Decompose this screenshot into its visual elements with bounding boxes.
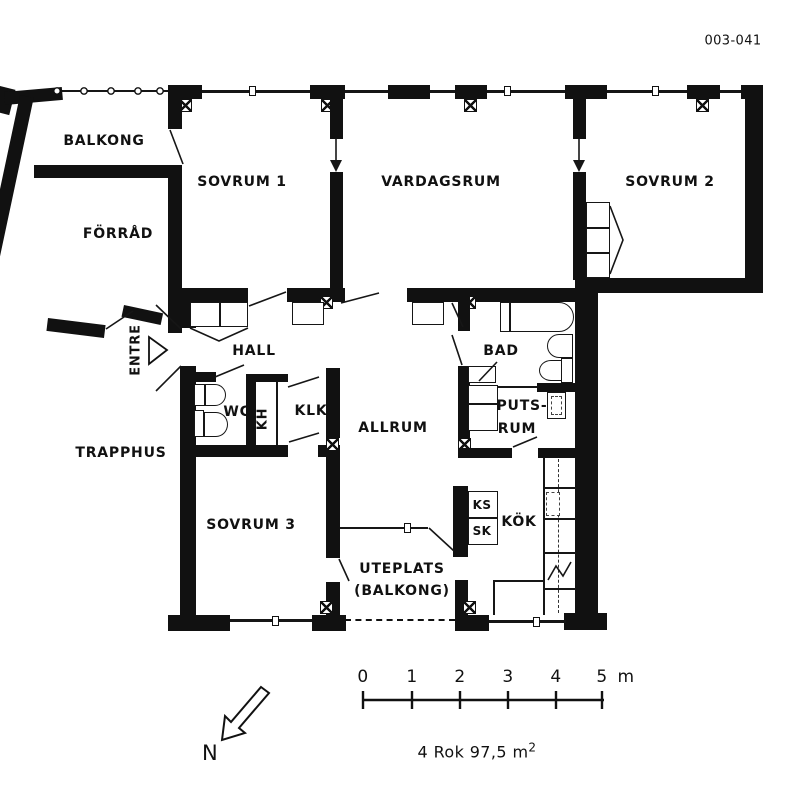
wall-segment (122, 305, 164, 325)
cabinet-detail (551, 396, 562, 415)
wall-segment (745, 85, 763, 293)
room-label-sovrum3: SOVRUM 3 (206, 517, 296, 533)
wardrobe-front-chevron (610, 206, 623, 274)
wall-segment (407, 288, 575, 302)
wardrobe-divider (586, 227, 610, 229)
vent-marker-icon (696, 99, 709, 112)
counter-divider (543, 552, 576, 554)
wall-segment (46, 318, 105, 338)
room-label-sovrum1: SOVRUM 1 (197, 174, 287, 190)
vent-arrow-head (573, 160, 585, 172)
wall-segment (573, 172, 586, 280)
plan-number: 003-041 (704, 34, 761, 49)
wall-segment (168, 99, 182, 129)
window-line (202, 90, 310, 93)
wall-segment (196, 372, 216, 382)
bathtub (500, 302, 574, 332)
window-line (487, 90, 565, 93)
door-swing-line (215, 365, 244, 377)
wall-segment (34, 165, 182, 178)
sink-divider (204, 385, 206, 405)
scale-tick-label: 2 (454, 667, 465, 687)
sink (194, 384, 226, 406)
cabinet (468, 385, 498, 431)
vent-marker-icon (463, 601, 476, 614)
wall-thin-line (495, 386, 537, 388)
cabinet-divider (469, 403, 497, 405)
wall-segment (194, 445, 288, 457)
window-mullion (504, 86, 511, 96)
door-swing-line (156, 366, 181, 391)
wall-segment (330, 99, 343, 139)
window-mullion (533, 617, 540, 627)
room-label-bad: BAD (483, 343, 519, 359)
window-mullion (652, 86, 659, 96)
room-label-forrad: FÖRRÅD (83, 226, 153, 242)
wall-segment (388, 85, 430, 99)
counter-front-line (543, 457, 545, 615)
window-line (230, 619, 312, 622)
room-label-allrum: ALLRUM (358, 420, 428, 436)
room-label-klk: KLK (294, 403, 327, 419)
room-label-trapphus: TRAPPHUS (75, 445, 166, 461)
window-line (345, 90, 388, 93)
door-swing-line (513, 437, 537, 447)
room-label-putsrum-1: PUTS- (496, 398, 547, 414)
door-swing-line (249, 292, 286, 306)
wall-segment (455, 615, 489, 631)
wall-segment (687, 85, 720, 99)
vent-marker-icon (326, 438, 339, 451)
wall-segment (537, 383, 575, 392)
vent-marker-icon (320, 601, 333, 614)
scale-bar-lines (363, 691, 604, 709)
wall-segment-slanted (0, 95, 34, 333)
window-line (340, 527, 428, 529)
fixture-label-sk: SK (473, 524, 492, 538)
wall-segment (565, 85, 607, 99)
window-line (489, 620, 566, 623)
wardrobe-divider (219, 302, 221, 327)
room-label-putsrum-2: RUM (498, 421, 536, 437)
vent-arrow-head (330, 160, 342, 172)
door-swing-line (288, 377, 319, 387)
north-arrow-icon (222, 687, 269, 740)
scale-tick-label: 1 (406, 667, 417, 687)
wall-segment (326, 452, 340, 558)
north-label: N (202, 741, 218, 765)
scale-tick-label: 4 (550, 667, 561, 687)
wall-segment (458, 293, 470, 331)
window-mullion (249, 86, 256, 96)
closet-front-line (276, 382, 278, 445)
room-label-entre: ENTRE (129, 324, 144, 376)
room-label-uteplats-2: (BALKONG) (354, 583, 450, 599)
wall-segment (330, 172, 343, 290)
room-label-wc: WC (223, 404, 250, 420)
wall-segment (168, 85, 202, 99)
room-label-balkong: BALKONG (63, 133, 144, 149)
room-label-sovrum2: SOVRUM 2 (625, 174, 715, 190)
wall-segment (326, 368, 340, 438)
entrance-arrow-icon (149, 337, 167, 364)
wall-segment (455, 85, 487, 99)
door-swing-line (429, 528, 454, 551)
wall-segment (573, 99, 586, 139)
door-swing-line (170, 130, 183, 164)
stove (546, 492, 560, 516)
wardrobe (586, 202, 610, 278)
sink (547, 334, 573, 358)
apartment-summary: 4 Rok 97,5 m2 (418, 740, 537, 761)
wardrobe (292, 302, 324, 325)
wardrobe-door-lines (190, 328, 248, 341)
bathtub-divider (509, 303, 511, 331)
wall-segment (564, 613, 607, 630)
wardrobe (412, 302, 444, 325)
scale-unit-label: m (618, 667, 635, 687)
toilet-tank (561, 358, 573, 383)
vent-marker-icon (464, 99, 477, 112)
window-mullion (272, 616, 279, 626)
apartment-summary-sup: 2 (528, 740, 536, 754)
room-label-kh: KH (256, 408, 271, 431)
wall-segment (312, 615, 346, 631)
door-swing-line (339, 559, 349, 581)
room-label-kok: KÖK (501, 514, 536, 530)
room-label-vardagsrum: VARDAGSRUM (381, 174, 501, 190)
counter-divider (543, 487, 576, 489)
floor-plan: BALKONG FÖRRÅD SOVRUM 1 VARDAGSRUM SOVRU… (0, 0, 802, 800)
annotation-lines (0, 0, 802, 800)
cabinet (468, 366, 496, 383)
wall-segment (168, 615, 230, 631)
sink-zigzag-symbol (548, 562, 571, 580)
balcony-edge-dashed (345, 619, 455, 621)
window-line (720, 90, 741, 93)
window-line (607, 90, 687, 93)
wardrobe-divider (586, 252, 610, 254)
room-label-uteplats-1: UTEPLATS (359, 561, 444, 577)
toilet-tank (194, 410, 204, 437)
wall-segment (180, 288, 248, 302)
window-line (430, 90, 455, 93)
apartment-summary-text: 4 Rok 97,5 m (418, 743, 529, 762)
scale-tick-label: 5 (596, 667, 607, 687)
counter-return-line (493, 580, 545, 582)
counter-divider (543, 518, 576, 520)
counter-return-line (493, 580, 495, 615)
room-label-hall: HALL (232, 343, 276, 359)
counter-divider (543, 588, 576, 590)
door-swing-line (341, 293, 379, 303)
wall-segment (575, 278, 763, 293)
wall-segment (575, 293, 598, 613)
wall-segment (458, 448, 512, 458)
door-swing-line (289, 433, 319, 442)
toilet-bowl (539, 360, 563, 381)
scale-tick-label: 0 (357, 667, 368, 687)
door-swing-line (452, 335, 462, 365)
fixture-label-ks: KS (473, 498, 492, 512)
balcony-railing (55, 90, 168, 92)
wall-segment (310, 85, 345, 99)
wall-segment (287, 288, 345, 302)
scale-tick-label: 3 (502, 667, 513, 687)
appliance-block (453, 486, 468, 557)
window-mullion (404, 523, 411, 533)
